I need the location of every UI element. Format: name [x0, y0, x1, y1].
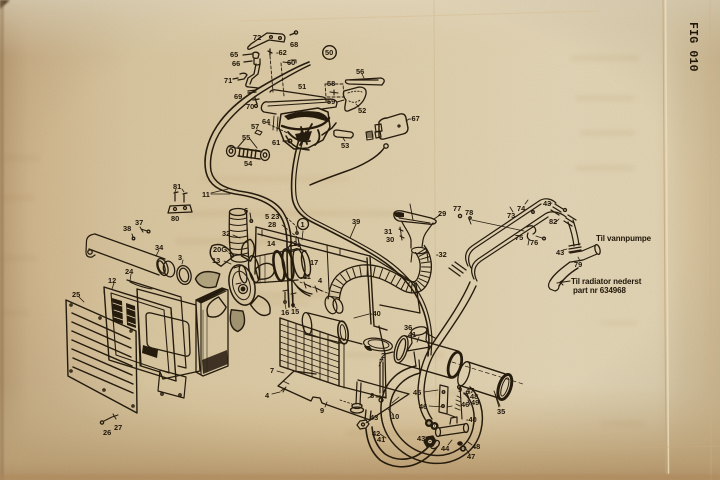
svg-text:43: 43 [543, 199, 551, 208]
svg-text:43: 43 [370, 413, 378, 422]
svg-text:part nr 634968: part nr 634968 [573, 286, 627, 295]
svg-text:3: 3 [178, 253, 182, 262]
svg-text:76: 76 [530, 238, 538, 247]
svg-text:10: 10 [391, 412, 399, 421]
svg-text:11: 11 [202, 190, 210, 199]
svg-text:-40: -40 [370, 309, 381, 318]
svg-text:9: 9 [458, 385, 462, 394]
svg-text:8: 8 [370, 391, 374, 400]
svg-text:12: 12 [108, 276, 116, 285]
svg-text:51: 51 [298, 82, 306, 91]
svg-text:69: 69 [234, 92, 242, 101]
svg-text:79: 79 [574, 260, 582, 269]
svg-text:78: 78 [465, 208, 473, 217]
svg-text:81: 81 [173, 182, 181, 191]
svg-text:82: 82 [549, 217, 557, 226]
svg-text:47: 47 [467, 452, 475, 461]
svg-text:41: 41 [408, 330, 416, 339]
svg-text:73: 73 [507, 211, 515, 220]
svg-text:52: 52 [358, 106, 366, 115]
svg-text:16: 16 [281, 308, 289, 317]
svg-text:54: 54 [244, 159, 253, 168]
svg-text:25: 25 [72, 290, 80, 299]
svg-text:20G: 20G [213, 245, 227, 254]
svg-text:57: 57 [251, 122, 259, 131]
svg-text:46: 46 [419, 402, 427, 411]
svg-text:29: 29 [438, 209, 446, 218]
svg-text:41: 41 [377, 435, 385, 444]
svg-text:15: 15 [291, 307, 299, 316]
svg-text:11: 11 [303, 272, 311, 281]
svg-text:-62: -62 [276, 48, 287, 57]
svg-text:1: 1 [301, 220, 305, 229]
svg-text:39: 39 [352, 217, 360, 226]
svg-text:32: 32 [222, 229, 230, 238]
svg-text:Til radiator nederst: Til radiator nederst [571, 277, 642, 286]
svg-text:43: 43 [417, 434, 425, 443]
svg-text:35: 35 [497, 407, 505, 416]
svg-text:56: 56 [356, 67, 364, 76]
svg-text:Til vannpumpe: Til vannpumpe [596, 234, 652, 243]
svg-text:24: 24 [125, 267, 134, 276]
svg-text:66: 66 [232, 59, 240, 68]
svg-text:72: 72 [253, 33, 261, 42]
svg-text:7: 7 [270, 366, 274, 375]
svg-text:34: 34 [155, 243, 164, 252]
svg-text:70: 70 [246, 102, 254, 111]
svg-text:37: 37 [135, 218, 143, 227]
svg-text:58: 58 [327, 79, 335, 88]
svg-text:-40: -40 [466, 415, 477, 424]
svg-text:68: 68 [290, 40, 298, 49]
svg-text:46: 46 [461, 400, 469, 409]
svg-text:71: 71 [224, 76, 232, 85]
svg-text:61: 61 [272, 138, 280, 147]
svg-text:44: 44 [441, 444, 450, 453]
svg-text:13: 13 [212, 256, 220, 265]
svg-text:38: 38 [123, 224, 131, 233]
svg-text:17: 17 [310, 258, 318, 267]
svg-text:43: 43 [556, 248, 564, 257]
svg-text:74: 74 [517, 204, 526, 213]
svg-text:2: 2 [381, 351, 385, 360]
svg-text:-67: -67 [409, 114, 420, 123]
svg-text:64: 64 [262, 117, 271, 126]
svg-text:50: 50 [325, 48, 333, 57]
svg-text:59: 59 [327, 97, 335, 106]
svg-text:27: 27 [114, 423, 122, 432]
svg-text:48: 48 [472, 442, 480, 451]
svg-text:53: 53 [341, 141, 349, 150]
svg-text:30: 30 [386, 235, 394, 244]
svg-text:80: 80 [171, 214, 179, 223]
svg-text:49: 49 [471, 398, 479, 407]
svg-text:45: 45 [413, 388, 421, 397]
svg-text:6: 6 [244, 206, 248, 215]
svg-text:-32: -32 [436, 250, 447, 259]
svg-text:55: 55 [242, 133, 250, 142]
svg-text:26: 26 [103, 428, 111, 437]
svg-text:22: 22 [289, 239, 297, 248]
svg-text:65: 65 [230, 50, 238, 59]
svg-text:28: 28 [268, 220, 276, 229]
svg-text:9: 9 [320, 406, 324, 415]
svg-text:14: 14 [267, 239, 276, 248]
svg-text:75: 75 [515, 233, 523, 242]
svg-text:60: 60 [287, 58, 295, 67]
svg-text:FIG 010: FIG 010 [686, 22, 699, 72]
svg-text:77: 77 [453, 204, 461, 213]
